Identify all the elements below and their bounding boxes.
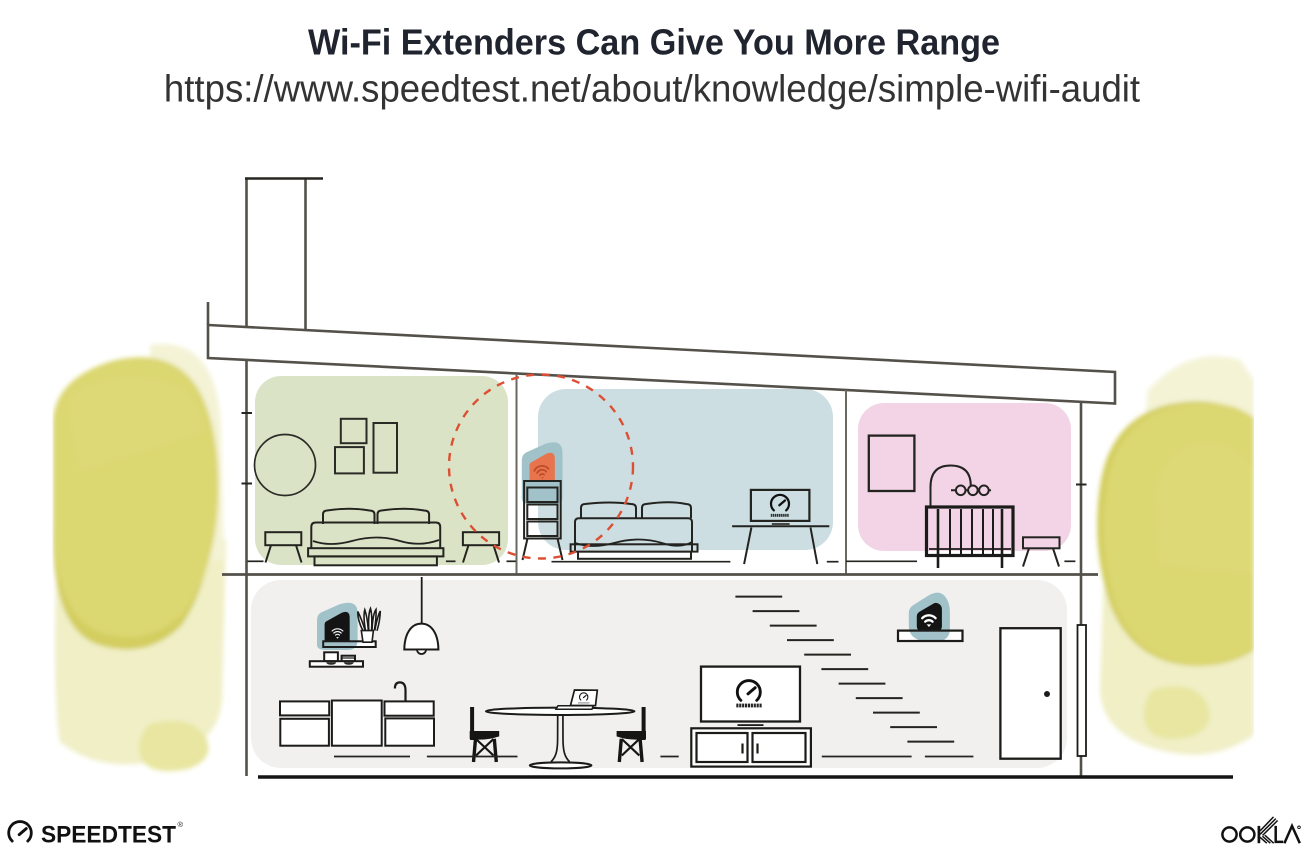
- svg-text:Wi-Fi Extenders Can Give You M: Wi-Fi Extenders Can Give You More Range: [308, 23, 1000, 63]
- svg-text:https://www.speedtest.net/abou: https://www.speedtest.net/about/knowledg…: [164, 67, 1141, 110]
- svg-text:®: ®: [178, 820, 184, 829]
- svg-text:SPEEDTEST: SPEEDTEST: [41, 821, 176, 848]
